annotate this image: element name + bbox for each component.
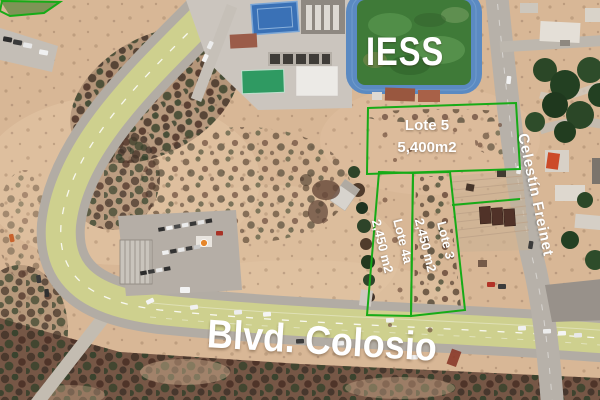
tennis-court <box>251 1 299 34</box>
lote-5-area: 5,400m2 <box>367 139 487 157</box>
paved-lot-bottom-right <box>545 278 600 322</box>
place-marker-icon <box>201 240 208 247</box>
orange-sign-roof <box>546 152 560 170</box>
gas-station <box>118 210 242 296</box>
lote-5-label: Lote 5 5,400m2 <box>367 117 487 157</box>
school-building <box>301 0 345 34</box>
shade-structures <box>268 52 332 66</box>
green-court <box>242 69 285 93</box>
aerial-map: IESS Lote 5 5,400m2 Lote 4a 2,450 m2 Lot… <box>0 0 600 400</box>
white-building <box>296 66 338 96</box>
red-roof-building <box>230 33 258 48</box>
lote-5-name: Lote 5 <box>367 117 487 135</box>
iess-field-label: IESS <box>352 28 459 76</box>
